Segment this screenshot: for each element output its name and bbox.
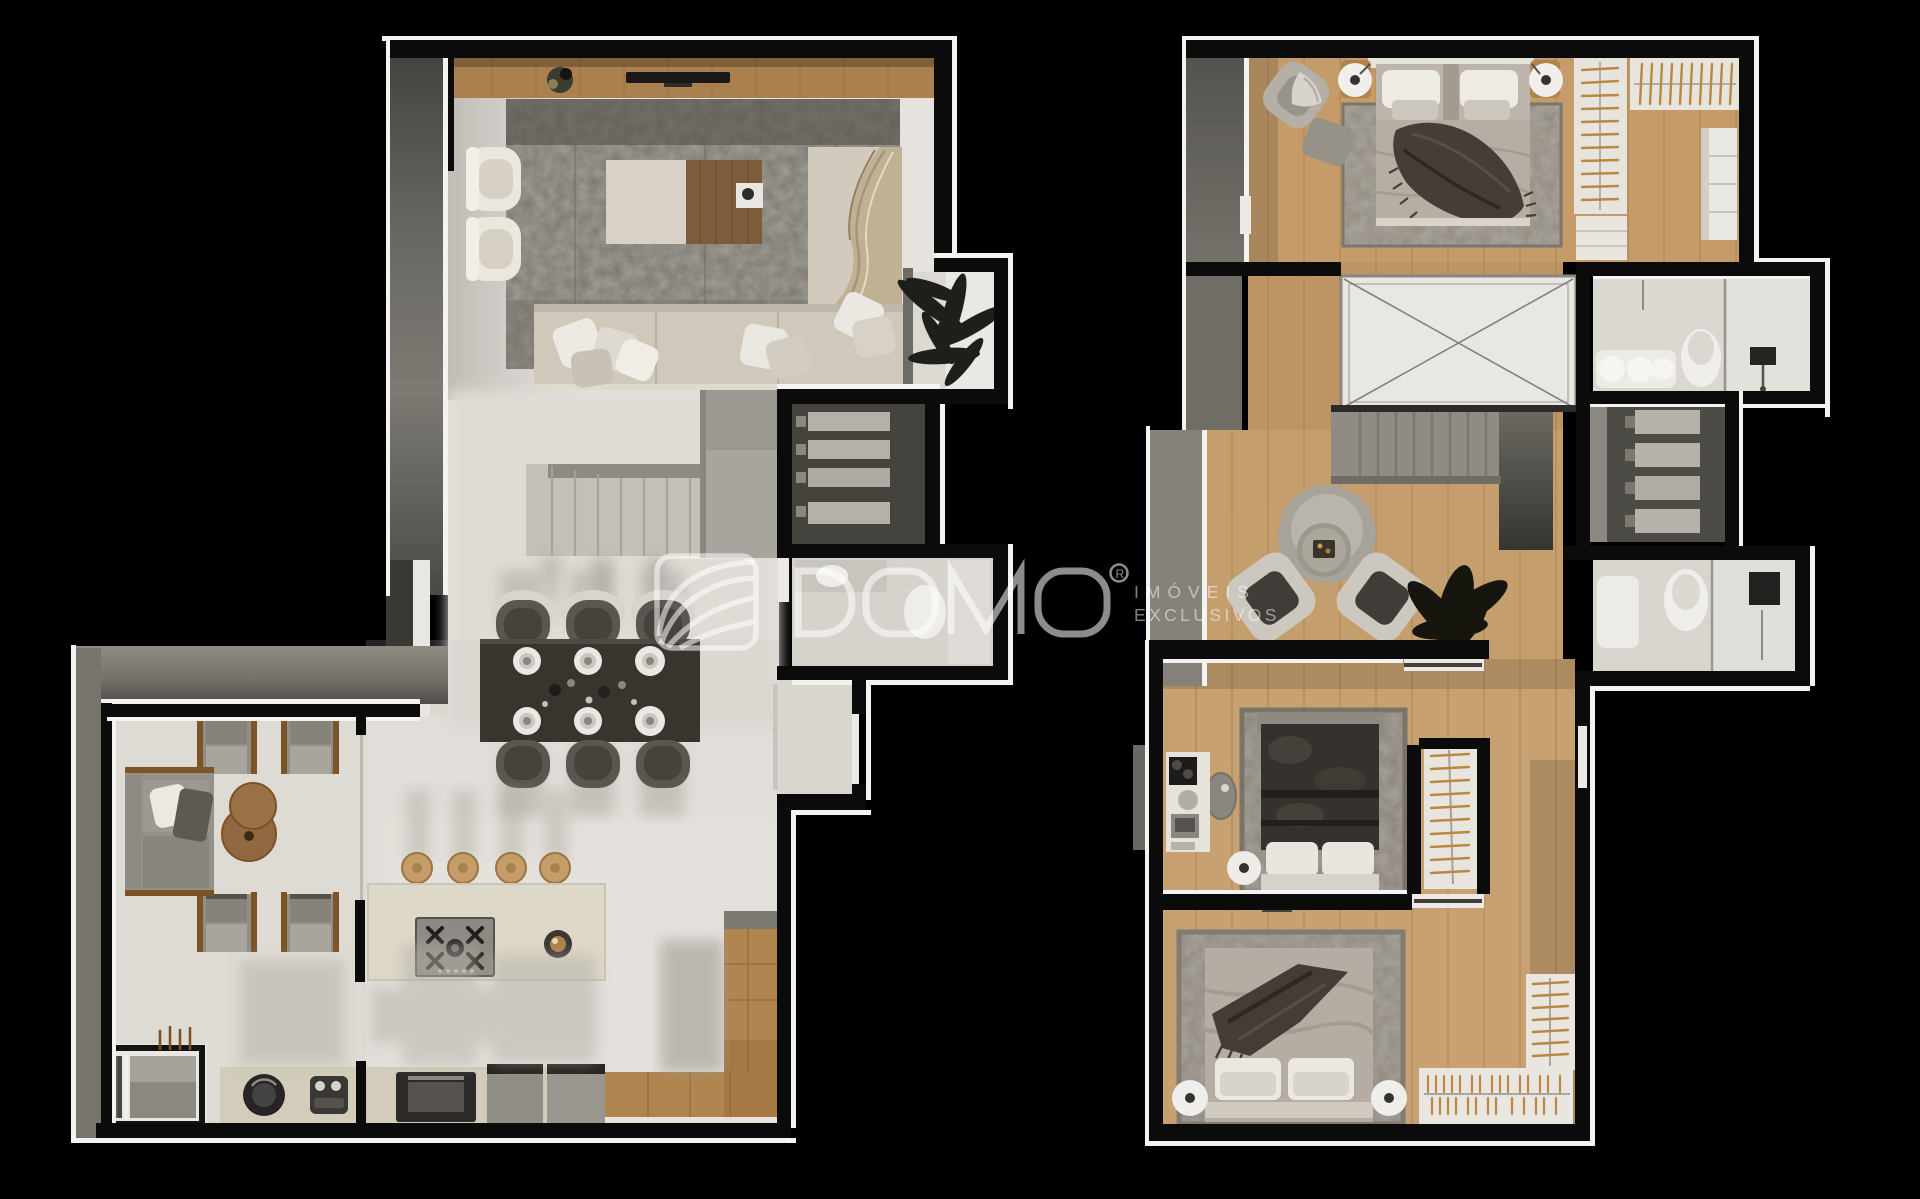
svg-text:EXCLUSIVOS: EXCLUSIVOS <box>1134 605 1280 625</box>
svg-text:IMÓVEIS: IMÓVEIS <box>1134 581 1256 602</box>
svg-text:R: R <box>1116 567 1125 581</box>
